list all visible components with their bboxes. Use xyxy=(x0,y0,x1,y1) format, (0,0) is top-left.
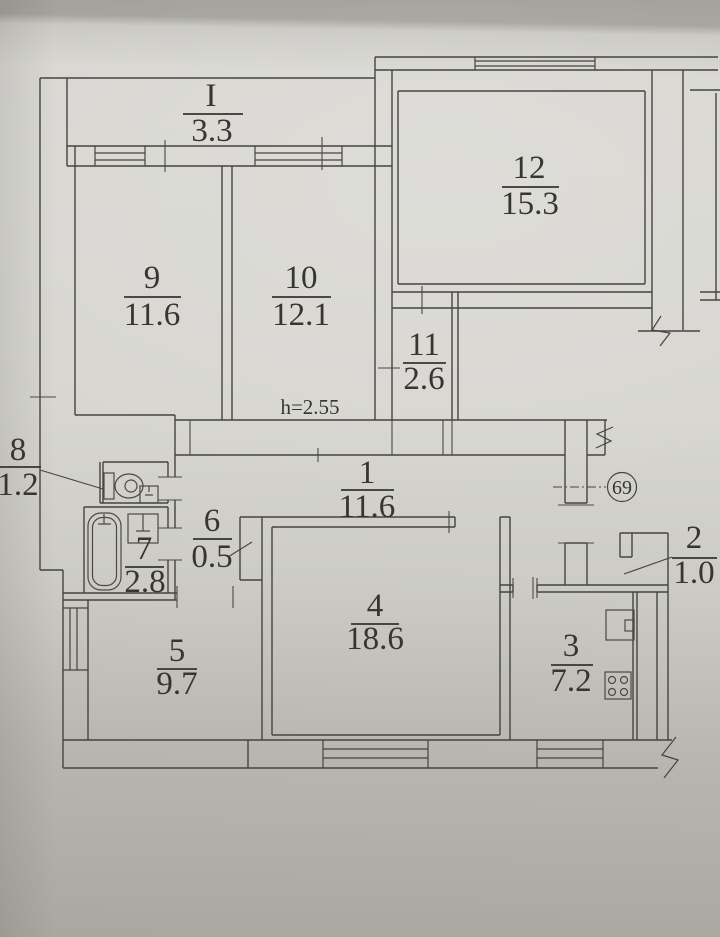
floorplan-drawing: I 3.3 9 11.6 10 12.1 12 15.3 11 2.6 h=2.… xyxy=(0,0,720,937)
scanned-floorplan-photo: I 3.3 9 11.6 10 12.1 12 15.3 11 2.6 h=2.… xyxy=(0,0,720,937)
room10-area: 12.1 xyxy=(272,297,330,333)
hall1-area: 11.6 xyxy=(339,489,396,525)
room12-area: 15.3 xyxy=(501,186,559,222)
hall1-number: 1 xyxy=(359,455,376,491)
kitchen3-area: 7.2 xyxy=(550,663,591,699)
room5-number: 5 xyxy=(169,633,186,669)
room9-number: 9 xyxy=(144,260,161,296)
apartment-number: 69 xyxy=(612,477,632,499)
room9-area: 11.6 xyxy=(124,297,181,333)
room11-area: 2.6 xyxy=(403,361,444,397)
room10-number: 10 xyxy=(285,260,318,296)
vestibule2-number: 2 xyxy=(686,520,703,556)
kitchen3-number: 3 xyxy=(563,628,580,664)
room5-area: 9.7 xyxy=(156,666,197,702)
balcony-area: 3.3 xyxy=(191,113,232,149)
closet6-area: 0.5 xyxy=(191,539,232,575)
vestibule2-area: 1.0 xyxy=(673,555,714,591)
bath7-area: 2.8 xyxy=(124,564,165,600)
room12-number: 12 xyxy=(513,150,546,186)
room11-number: 11 xyxy=(408,327,440,363)
room4-area: 18.6 xyxy=(346,621,404,657)
wc8-area: 1.2 xyxy=(0,467,39,503)
kitchen-sink-icon xyxy=(606,610,634,640)
room4-number: 4 xyxy=(367,588,384,624)
walls xyxy=(40,57,720,768)
bath7-number: 7 xyxy=(136,531,153,567)
wc8-number: 8 xyxy=(10,432,27,468)
ceiling-height-note: h=2.55 xyxy=(280,395,339,419)
bathtub-icon xyxy=(88,513,121,590)
stove-icon xyxy=(605,672,631,699)
toilet-icon xyxy=(104,473,143,499)
balcony-number: I xyxy=(206,78,217,114)
closet6-number: 6 xyxy=(204,503,221,539)
